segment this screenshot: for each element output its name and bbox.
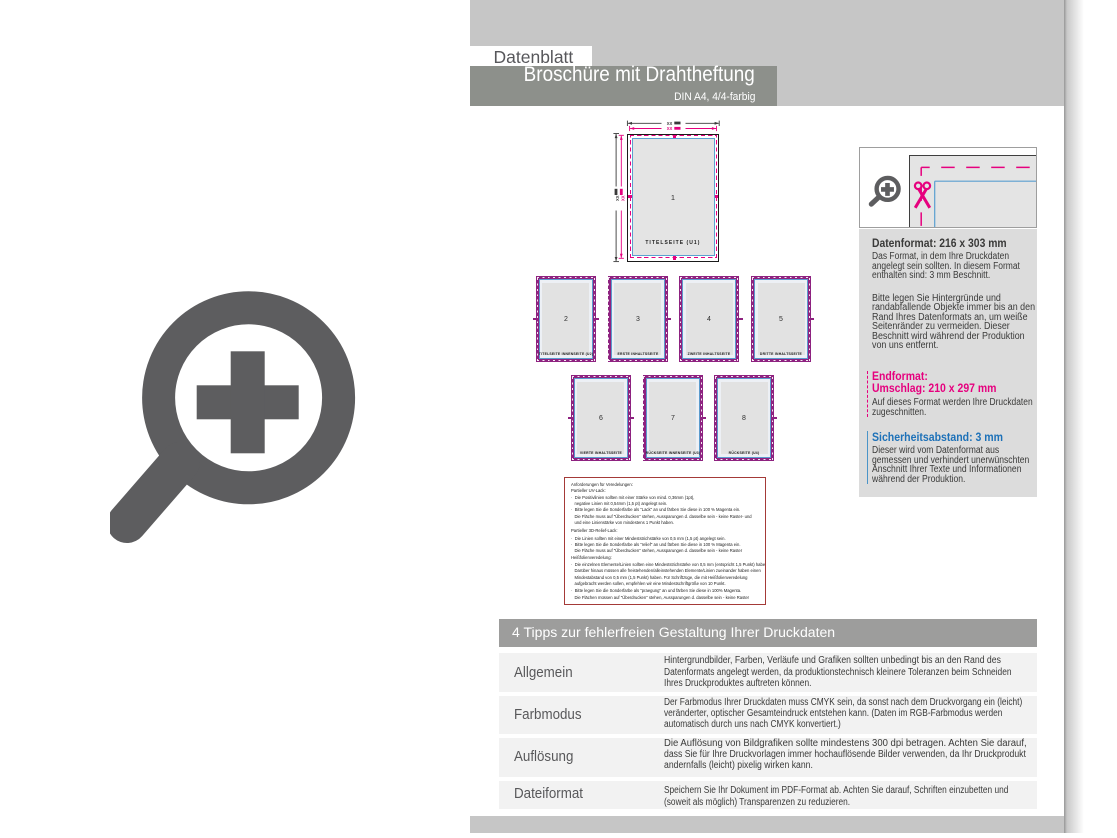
svg-text:XX: XX [667,126,673,131]
svg-text:XX: XX [667,121,673,126]
svg-text:XX: XX [620,195,625,201]
